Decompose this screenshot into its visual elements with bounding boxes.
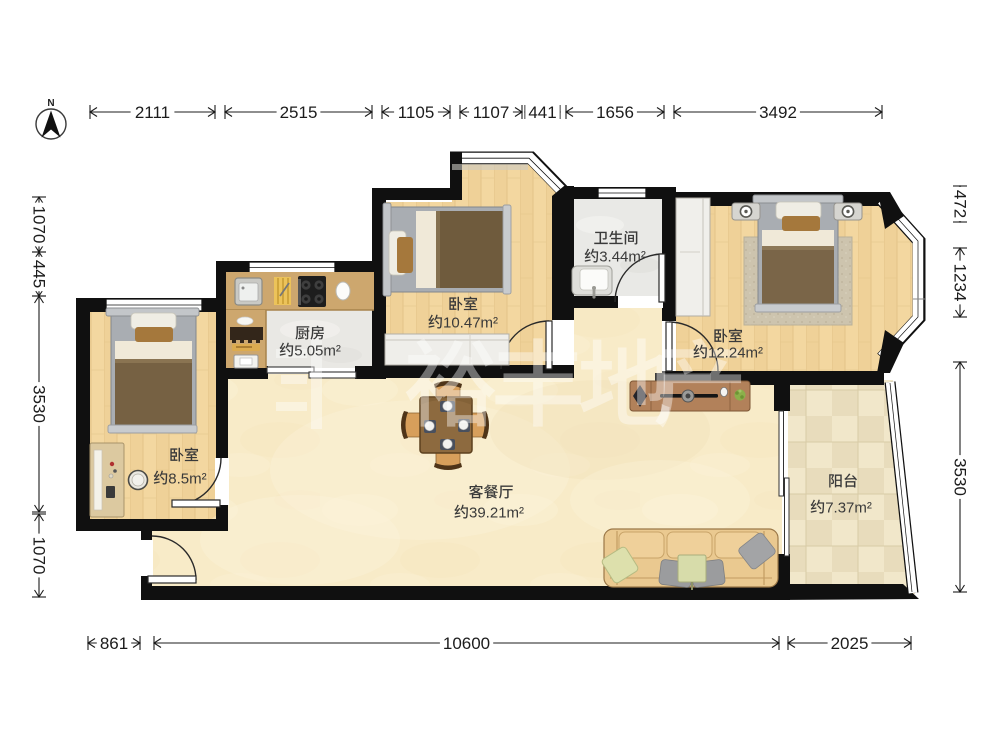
svg-text:472: 472 [951,190,970,218]
svg-text:1070: 1070 [30,206,49,244]
svg-text:441: 441 [528,103,556,122]
svg-text:5.05m²: 5.05m² [294,342,341,359]
svg-text:8.5m²: 8.5m² [168,470,206,487]
svg-text:1107: 1107 [473,103,510,122]
svg-text:10.47m²: 10.47m² [443,314,498,331]
svg-text:10600: 10600 [443,634,490,653]
svg-text:2025: 2025 [831,634,869,653]
svg-text:39.21m²: 39.21m² [469,504,524,521]
svg-text:1656: 1656 [596,103,634,122]
svg-text:3.44m²: 3.44m² [599,248,646,265]
svg-text:3492: 3492 [759,103,797,122]
svg-text:3530: 3530 [30,385,49,423]
svg-text:445: 445 [30,260,49,288]
svg-text:1234: 1234 [951,264,970,302]
svg-text:1070: 1070 [30,537,49,575]
svg-text:7.37m²: 7.37m² [825,499,872,516]
svg-text:861: 861 [100,634,128,653]
svg-text:N: N [47,98,54,109]
svg-text:2515: 2515 [280,103,318,122]
svg-text:1105: 1105 [398,103,435,122]
svg-text:3530: 3530 [951,458,970,496]
svg-text:12.24m²: 12.24m² [708,344,763,361]
svg-text:2111: 2111 [135,103,170,122]
